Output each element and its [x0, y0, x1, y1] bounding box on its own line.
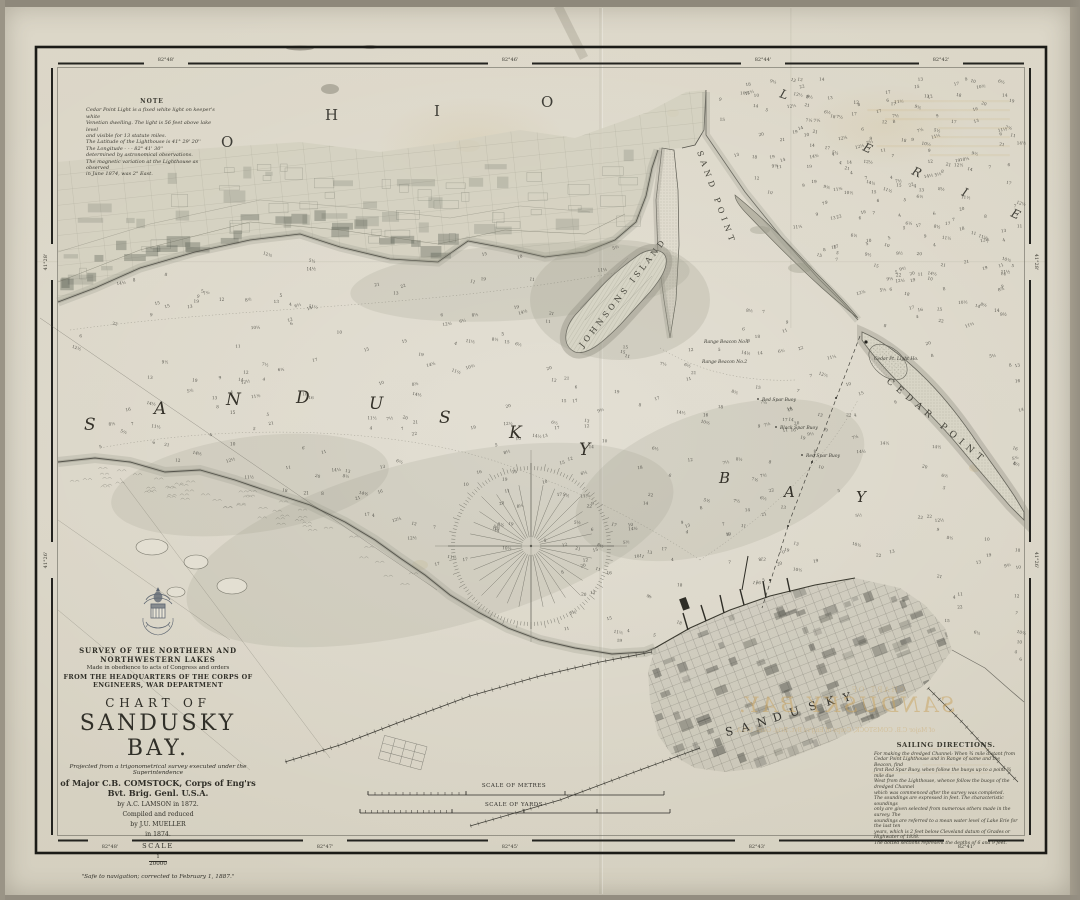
svg-text:9: 9 [924, 233, 928, 238]
svg-text:17: 17 [908, 304, 915, 310]
svg-text:4: 4 [953, 594, 956, 599]
svg-text:21: 21 [963, 259, 969, 265]
svg-text:14½: 14½ [116, 280, 126, 286]
svg-text:9½: 9½ [597, 407, 605, 414]
svg-text:11: 11 [741, 523, 747, 529]
svg-text:21: 21 [804, 102, 811, 108]
svg-text:5: 5 [762, 577, 766, 583]
svg-text:12½: 12½ [895, 278, 905, 284]
svg-text:7½: 7½ [813, 118, 820, 123]
svg-text:14½: 14½ [856, 449, 866, 454]
svg-text:10½: 10½ [851, 541, 861, 548]
svg-text:5: 5 [495, 442, 498, 447]
svg-text:9½: 9½ [823, 184, 831, 190]
svg-text:11½: 11½ [882, 186, 893, 194]
svg-text:82°45': 82°45' [502, 844, 519, 850]
svg-text:12: 12 [1014, 593, 1020, 598]
svg-text:10: 10 [927, 275, 934, 281]
svg-text:82°48': 82°48' [158, 57, 175, 63]
svg-text:14: 14 [779, 157, 786, 163]
scale-label: SCALE [54, 842, 262, 850]
svg-text:4: 4 [839, 160, 843, 165]
svg-text:12½: 12½ [442, 321, 452, 327]
svg-text:15: 15 [873, 262, 880, 268]
svg-text:20: 20 [776, 560, 783, 567]
scale-metres-label: SCALE OF METRES [482, 783, 546, 789]
svg-text:16: 16 [1015, 378, 1021, 383]
svg-text:14: 14 [819, 76, 825, 81]
svg-text:12: 12 [287, 316, 294, 322]
svg-text:8½: 8½ [933, 223, 941, 229]
svg-text:41°26': 41°26' [1033, 552, 1039, 569]
comstock-line: of Major C.B. COMSTOCK, Corps of Eng'rs … [54, 778, 262, 798]
scale-fraction: 1 20000 [149, 855, 167, 867]
svg-text:10: 10 [1015, 564, 1021, 570]
svg-text:10½: 10½ [465, 363, 475, 371]
svg-text:5½: 5½ [879, 287, 886, 293]
svg-text:21: 21 [780, 137, 786, 142]
svg-text:5½: 5½ [186, 387, 194, 394]
svg-text:14½: 14½ [426, 361, 436, 368]
svg-text:11½: 11½ [465, 338, 475, 345]
svg-text:14½: 14½ [412, 391, 422, 398]
svg-text:8½: 8½ [735, 456, 742, 462]
svg-text:5: 5 [887, 235, 891, 241]
svg-text:11½: 11½ [613, 629, 623, 635]
svg-text:13: 13 [889, 548, 896, 554]
svg-text:13: 13 [924, 93, 930, 99]
svg-text:11: 11 [529, 276, 535, 282]
svg-text:6: 6 [932, 211, 936, 217]
svg-text:7: 7 [872, 210, 875, 215]
sand-point-label: SAND POINT [695, 150, 738, 247]
svg-text:17: 17 [661, 546, 667, 551]
svg-text:12: 12 [175, 457, 181, 462]
svg-text:16: 16 [125, 406, 132, 412]
svg-text:10: 10 [463, 482, 469, 487]
svg-text:16: 16 [703, 413, 709, 418]
svg-text:19: 19 [982, 265, 989, 271]
svg-text:CHART OF: CHART OF [850, 686, 905, 694]
svg-text:13: 13 [919, 187, 925, 192]
svg-text:19: 19 [502, 477, 508, 482]
svg-text:N: N [225, 390, 242, 410]
svg-text:15: 15 [623, 344, 629, 349]
svg-text:19: 19 [470, 424, 477, 430]
svg-text:9: 9 [824, 200, 828, 205]
svg-text:41°28': 41°28' [1033, 254, 1039, 271]
svg-text:7: 7 [433, 524, 436, 529]
svg-text:8: 8 [930, 353, 934, 359]
svg-text:12: 12 [583, 557, 589, 562]
svg-text:17: 17 [654, 395, 661, 402]
svg-text:14½: 14½ [932, 444, 942, 449]
svg-text:21: 21 [304, 491, 310, 496]
svg-text:20: 20 [916, 251, 922, 256]
svg-text:15: 15 [936, 306, 942, 312]
svg-text:20: 20 [546, 365, 553, 372]
svg-text:7½: 7½ [916, 126, 924, 133]
svg-text:41°26': 41°26' [43, 552, 49, 569]
svg-text:L: L [777, 86, 790, 102]
svg-text:11: 11 [564, 626, 570, 632]
svg-text:5: 5 [718, 347, 721, 352]
svg-text:19: 19 [418, 352, 424, 358]
svg-text:17: 17 [364, 511, 370, 517]
svg-text:11: 11 [957, 591, 963, 596]
svg-text:7½: 7½ [386, 415, 393, 421]
svg-text:6½: 6½ [515, 341, 523, 348]
svg-text:9: 9 [718, 97, 722, 103]
svg-text:9: 9 [935, 113, 939, 119]
svg-text:6: 6 [575, 384, 578, 389]
svg-text:12: 12 [243, 370, 249, 375]
svg-text:A: A [782, 483, 795, 501]
svg-text:8: 8 [321, 491, 324, 496]
correction-footnote: "Safe to navigation; corrected to Februa… [54, 874, 262, 880]
svg-text:6½: 6½ [850, 232, 857, 238]
svg-text:13: 13 [187, 304, 193, 310]
svg-text:9½: 9½ [771, 163, 778, 169]
svg-text:21: 21 [691, 370, 697, 375]
svg-text:8½: 8½ [244, 296, 252, 302]
svg-text:10: 10 [970, 78, 977, 84]
svg-text:Red Spar Buoy: Red Spar Buoy [761, 397, 797, 403]
svg-text:7½: 7½ [733, 498, 740, 504]
note-heading: NOTE [86, 99, 218, 105]
svg-text:11: 11 [686, 376, 692, 382]
svg-text:6: 6 [1019, 656, 1023, 662]
svg-text:6: 6 [742, 326, 746, 331]
svg-text:7: 7 [864, 175, 868, 180]
svg-text:19: 19 [614, 389, 620, 394]
svg-text:21: 21 [812, 129, 819, 135]
svg-text:6: 6 [79, 333, 82, 338]
svg-text:15: 15 [561, 398, 567, 403]
chart-of-label: CHART OF [54, 696, 262, 710]
svg-text:5: 5 [99, 444, 103, 450]
svg-text:10½: 10½ [793, 566, 803, 572]
svg-text:17: 17 [953, 81, 960, 87]
svg-text:14: 14 [1018, 406, 1025, 413]
svg-text:20: 20 [794, 420, 800, 426]
svg-text:11½: 11½ [833, 186, 843, 192]
svg-text:5: 5 [266, 412, 269, 417]
svg-text:9½: 9½ [1000, 312, 1007, 317]
survey-line: SURVEY OF THE NORTHERN AND NORTHWESTERN … [54, 646, 262, 664]
svg-text:19: 19 [769, 154, 775, 160]
scan-edge-top [0, 0, 1080, 7]
svg-text:18: 18 [901, 137, 908, 143]
svg-text:11: 11 [545, 319, 551, 324]
svg-text:22: 22 [846, 412, 852, 418]
svg-text:10: 10 [779, 549, 786, 555]
svg-text:16: 16 [860, 209, 867, 215]
svg-text:14½: 14½ [741, 349, 751, 356]
svg-text:7: 7 [952, 217, 956, 222]
svg-text:12½: 12½ [838, 135, 848, 142]
svg-text:8: 8 [941, 169, 945, 174]
svg-text:4: 4 [897, 212, 902, 218]
svg-text:5: 5 [765, 107, 769, 113]
svg-text:12½: 12½ [262, 250, 273, 258]
svg-text:4: 4 [853, 412, 857, 418]
svg-text:9½: 9½ [899, 265, 907, 272]
svg-text:16: 16 [606, 570, 612, 575]
svg-text:11½: 11½ [151, 423, 161, 430]
mueller-line: by J.U. MUELLER [54, 821, 262, 828]
svg-text:22: 22 [957, 604, 963, 609]
svg-text:10: 10 [230, 441, 236, 446]
svg-text:20: 20 [758, 131, 765, 137]
svg-text:5: 5 [836, 250, 840, 256]
svg-text:16: 16 [917, 307, 923, 313]
svg-text:14½: 14½ [880, 440, 889, 445]
svg-text:10: 10 [804, 132, 810, 137]
svg-text:7½: 7½ [760, 472, 767, 478]
svg-text:6: 6 [861, 127, 864, 132]
svg-text:S: S [84, 415, 96, 435]
svg-text:15: 15 [504, 339, 510, 344]
svg-text:4: 4 [646, 593, 649, 598]
svg-text:9: 9 [150, 312, 154, 317]
svg-text:7½: 7½ [261, 361, 269, 367]
svg-text:22: 22 [797, 345, 804, 352]
svg-text:12½: 12½ [787, 103, 797, 109]
svg-text:12½: 12½ [856, 289, 866, 296]
svg-text:9½: 9½ [807, 431, 814, 437]
svg-text:13: 13 [274, 299, 280, 304]
svg-text:6½: 6½ [396, 458, 404, 465]
svg-text:20: 20 [505, 403, 512, 409]
svg-text:5: 5 [201, 288, 204, 293]
svg-text:22: 22 [799, 83, 806, 89]
svg-text:10½: 10½ [958, 299, 968, 304]
svg-text:9½: 9½ [1003, 562, 1011, 569]
svg-text:7: 7 [400, 426, 404, 432]
note-block: NOTE Cedar Point Light is a fixed white … [86, 99, 218, 178]
svg-text:4: 4 [671, 557, 674, 562]
svg-text:D: D [295, 388, 310, 408]
svg-text:9: 9 [815, 211, 819, 216]
svg-text:5½: 5½ [120, 428, 128, 435]
svg-text:15: 15 [858, 390, 865, 397]
svg-text:4: 4 [627, 628, 630, 633]
svg-text:8½: 8½ [471, 312, 478, 318]
svg-text:4: 4 [289, 302, 293, 307]
svg-text:6½: 6½ [294, 302, 302, 309]
svg-text:9½: 9½ [896, 250, 903, 255]
svg-text:8: 8 [133, 278, 136, 283]
sandusky-bay-chart-photo: 82°48' 82°46' 82°44' 82°42' 82°48' 82°47… [0, 0, 1080, 900]
svg-text:14: 14 [753, 103, 759, 109]
headquarters-line: FROM THE HEADQUARTERS OF THE CORPS OF EN… [54, 673, 262, 689]
chart-title: SANDUSKY BAY. [54, 711, 262, 761]
svg-text:18: 18 [676, 619, 683, 626]
svg-text:O: O [221, 133, 233, 151]
svg-text:10: 10 [725, 531, 731, 537]
svg-text:18: 18 [637, 465, 643, 471]
svg-text:8½: 8½ [108, 421, 115, 427]
svg-text:11: 11 [880, 147, 886, 153]
svg-text:13: 13 [827, 95, 833, 101]
svg-text:8½: 8½ [492, 337, 499, 343]
svg-text:8½: 8½ [806, 94, 813, 99]
svg-text:8: 8 [216, 404, 219, 409]
svg-text:14: 14 [809, 143, 815, 148]
svg-text:7: 7 [809, 373, 813, 378]
svg-text:4: 4 [890, 175, 893, 180]
svg-text:7½: 7½ [805, 118, 812, 123]
svg-text:7: 7 [1014, 610, 1018, 616]
svg-text:10: 10 [602, 438, 608, 443]
svg-text:8: 8 [942, 286, 946, 292]
svg-text:8: 8 [638, 402, 642, 407]
svg-text:12½: 12½ [935, 517, 945, 522]
svg-text:14½: 14½ [331, 467, 341, 473]
svg-text:10½: 10½ [844, 190, 853, 195]
svg-text:7: 7 [131, 421, 135, 426]
svg-text:5: 5 [279, 293, 282, 298]
svg-text:5: 5 [252, 426, 256, 432]
svg-text:17: 17 [557, 492, 563, 497]
svg-text:13: 13 [975, 559, 981, 565]
svg-text:11½: 11½ [597, 267, 607, 273]
svg-text:15: 15 [512, 469, 518, 474]
svg-text:15: 15 [363, 346, 370, 352]
svg-text:9: 9 [964, 76, 968, 82]
svg-text:21: 21 [268, 420, 274, 426]
svg-text:11: 11 [1017, 223, 1023, 228]
svg-text:5: 5 [501, 332, 504, 337]
svg-text:17: 17 [462, 557, 468, 562]
svg-text:10: 10 [767, 189, 774, 195]
svg-text:7: 7 [728, 560, 731, 565]
svg-text:17: 17 [833, 243, 840, 249]
svg-text:19: 19 [481, 276, 487, 281]
svg-text:21: 21 [164, 442, 170, 448]
scan-edge-left [0, 0, 5, 900]
svg-text:41°28': 41°28' [43, 254, 49, 271]
svg-text:14: 14 [847, 160, 853, 165]
svg-text:15: 15 [871, 189, 877, 194]
svg-text:10: 10 [627, 522, 633, 528]
svg-text:5½: 5½ [622, 539, 629, 545]
svg-text:14½: 14½ [809, 153, 819, 160]
svg-text:4: 4 [914, 184, 917, 189]
svg-text:22: 22 [836, 213, 843, 220]
svg-text:6½: 6½ [916, 194, 923, 199]
svg-text:8½: 8½ [731, 388, 739, 395]
svg-text:12: 12 [754, 175, 760, 180]
svg-text:21: 21 [936, 573, 943, 579]
svg-text:6: 6 [876, 198, 879, 203]
svg-text:20: 20 [921, 463, 928, 470]
svg-text:9: 9 [893, 399, 898, 405]
svg-text:5½: 5½ [574, 520, 581, 526]
svg-text:6: 6 [886, 97, 890, 102]
svg-text:6½: 6½ [278, 367, 285, 372]
svg-text:6½: 6½ [684, 362, 692, 369]
svg-text:12½: 12½ [954, 162, 964, 167]
svg-text:20: 20 [959, 206, 966, 212]
svg-text:14½: 14½ [676, 409, 686, 415]
svg-text:14½: 14½ [1017, 140, 1026, 145]
svg-text:8½: 8½ [946, 535, 953, 541]
svg-text:19: 19 [807, 164, 813, 169]
svg-text:17: 17 [572, 398, 578, 404]
svg-text:22: 22 [411, 431, 417, 437]
svg-text:7: 7 [762, 309, 766, 314]
svg-text:10½: 10½ [960, 156, 970, 162]
svg-text:82°46': 82°46' [502, 57, 519, 63]
svg-text:17: 17 [851, 111, 857, 116]
svg-text:16: 16 [1012, 445, 1019, 451]
svg-text:Range Beacon No.2: Range Beacon No.2 [701, 359, 747, 365]
svg-text:10½: 10½ [502, 545, 512, 551]
svg-text:Black Spar Buoy: Black Spar Buoy [779, 425, 818, 431]
svg-text:18: 18 [956, 92, 963, 98]
svg-text:Y: Y [856, 488, 868, 506]
svg-text:10½: 10½ [976, 83, 986, 90]
svg-text:SANDUSKY BAY.: SANDUSKY BAY. [736, 693, 955, 717]
svg-text:12½: 12½ [863, 159, 873, 165]
svg-text:9½: 9½ [769, 78, 777, 85]
svg-text:17: 17 [945, 221, 951, 226]
svg-text:13: 13 [393, 290, 399, 295]
svg-text:11: 11 [504, 488, 510, 494]
svg-text:5½: 5½ [855, 512, 862, 518]
svg-text:15: 15 [944, 618, 950, 623]
svg-text:4: 4 [369, 425, 372, 430]
svg-text:15: 15 [914, 84, 920, 89]
svg-text:15: 15 [606, 615, 612, 621]
svg-text:13: 13 [733, 152, 740, 158]
svg-text:E: E [1008, 206, 1023, 223]
svg-text:13: 13 [1001, 228, 1007, 234]
svg-text:19: 19 [986, 552, 992, 558]
svg-text:4: 4 [454, 340, 458, 346]
svg-text:6: 6 [152, 440, 156, 446]
svg-text:22: 22 [917, 514, 923, 520]
svg-text:82°42': 82°42' [933, 57, 950, 63]
svg-text:of Major C.B. COMSTOCK, Corps: of Major C.B. COMSTOCK, Corps of Eng'rs … [735, 727, 935, 734]
svg-text:12½: 12½ [1016, 200, 1026, 207]
svg-text:19: 19 [617, 638, 623, 643]
svg-text:13: 13 [212, 395, 218, 400]
svg-text:14½: 14½ [306, 267, 315, 272]
svg-text:5: 5 [1011, 263, 1014, 268]
sailing-directions-block: SAILING DIRECTIONS. For making the dredg… [874, 741, 1018, 847]
obedience-line: Made in obedience to acts of Congress an… [54, 665, 262, 671]
svg-text:11: 11 [971, 230, 978, 236]
svg-text:15: 15 [896, 182, 902, 187]
svg-text:18: 18 [745, 81, 751, 87]
svg-text:13: 13 [542, 433, 549, 439]
svg-text:12½: 12½ [71, 344, 82, 352]
svg-text:6½: 6½ [459, 318, 467, 324]
svg-text:14½: 14½ [923, 172, 933, 179]
svg-text:5: 5 [942, 485, 946, 491]
scan-edge-right [1069, 0, 1080, 900]
svg-text:12: 12 [797, 77, 803, 83]
svg-text:A: A [152, 399, 166, 419]
svg-text:14: 14 [1002, 93, 1008, 98]
svg-text:18: 18 [959, 225, 966, 231]
svg-text:8: 8 [1008, 362, 1012, 368]
svg-text:17: 17 [885, 89, 891, 95]
svg-text:15: 15 [720, 117, 726, 122]
